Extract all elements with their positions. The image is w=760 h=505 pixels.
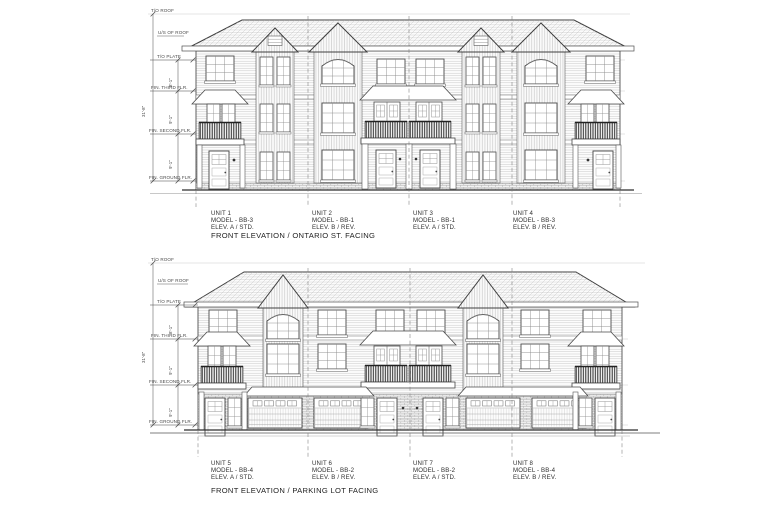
drawing-sheet: T/O ROOF U/S OF ROOF T/O PLATE FIN. THIR… xyxy=(0,0,760,505)
elevation-ontario xyxy=(148,12,642,207)
level-label: U/S OF ROOF xyxy=(158,30,189,35)
main-roof-bottom xyxy=(184,272,638,307)
unit-label-block: UNIT 8 MODEL - BB-4 ELEV. B / REV. xyxy=(513,460,556,482)
unit-elevation: ELEV. B / REV. xyxy=(513,224,556,231)
unit-model: MODEL - BB-3 xyxy=(513,217,556,224)
unit-model: MODEL - BB-2 xyxy=(312,467,355,474)
drawing-title: FRONT ELEVATION / PARKING LOT FACING xyxy=(211,486,378,495)
unit-label-block: UNIT 2 MODEL - BB-1 ELEV. B / REV. xyxy=(312,210,355,232)
storey-dimension: 8'-1" xyxy=(168,78,173,87)
unit-number: UNIT 3 xyxy=(413,210,456,217)
level-label: FIN. GROUND FLR. xyxy=(149,419,192,424)
storey-dimension: 8'-1" xyxy=(168,325,173,334)
dimension-lines-top xyxy=(150,12,196,184)
unit-number: UNIT 7 xyxy=(413,460,456,467)
storey-dimension: 9'-1" xyxy=(168,160,173,169)
level-label: T/O PLATE xyxy=(157,299,181,304)
drawing-title: FRONT ELEVATION / ONTARIO ST. FACING xyxy=(211,231,375,240)
level-label: T/O PLATE xyxy=(157,54,181,59)
level-label: FIN. GROUND FLR. xyxy=(149,175,192,180)
unit-number: UNIT 4 xyxy=(513,210,556,217)
level-label: FIN. SECOND FLR. xyxy=(149,128,191,133)
unit-model: MODEL - BB-1 xyxy=(312,217,355,224)
unit-elevation: ELEV. A / STD. xyxy=(211,474,254,481)
unit-number: UNIT 1 xyxy=(211,210,254,217)
unit-model: MODEL - BB-2 xyxy=(413,467,456,474)
unit-number: UNIT 2 xyxy=(312,210,355,217)
unit-number: UNIT 8 xyxy=(513,460,556,467)
unit-label-block: UNIT 1 MODEL - BB-3 ELEV. A / STD. xyxy=(211,210,254,232)
main-roof-top xyxy=(182,20,634,51)
unit-elevation: ELEV. A / STD. xyxy=(413,474,456,481)
level-label: T/O ROOF xyxy=(151,8,174,13)
unit-elevation: ELEV. B / REV. xyxy=(513,474,556,481)
unit-label-block: UNIT 3 MODEL - BB-1 ELEV. A / STD. xyxy=(413,210,456,232)
level-label: T/O ROOF xyxy=(151,257,174,262)
overall-dimension: 31'-8" xyxy=(141,352,146,363)
unit-model: MODEL - BB-1 xyxy=(413,217,456,224)
storey-dimension: 9'-1" xyxy=(168,408,173,417)
unit-label-block: UNIT 6 MODEL - BB-2 ELEV. B / REV. xyxy=(312,460,355,482)
dimension-lines-bottom xyxy=(150,261,198,428)
storey-dimension: 9'-1" xyxy=(168,366,173,375)
elevation-linework xyxy=(0,0,760,505)
unit-elevation: ELEV. B / REV. xyxy=(312,474,355,481)
unit-number: UNIT 5 xyxy=(211,460,254,467)
unit-label-block: UNIT 7 MODEL - BB-2 ELEV. A / STD. xyxy=(413,460,456,482)
unit-label-block: UNIT 5 MODEL - BB-4 ELEV. A / STD. xyxy=(211,460,254,482)
unit-elevation: ELEV. A / STD. xyxy=(413,224,456,231)
level-label: U/S OF ROOF xyxy=(158,278,189,283)
overall-dimension: 31'-8" xyxy=(141,106,146,117)
elevation-parking xyxy=(148,261,660,457)
unit-model: MODEL - BB-3 xyxy=(211,217,254,224)
unit-label-block: UNIT 4 MODEL - BB-3 ELEV. B / REV. xyxy=(513,210,556,232)
unit-number: UNIT 6 xyxy=(312,460,355,467)
level-label: FIN. SECOND FLR. xyxy=(149,379,191,384)
unit-model: MODEL - BB-4 xyxy=(211,467,254,474)
storey-dimension: 9'-1" xyxy=(168,115,173,124)
unit-model: MODEL - BB-4 xyxy=(513,467,556,474)
